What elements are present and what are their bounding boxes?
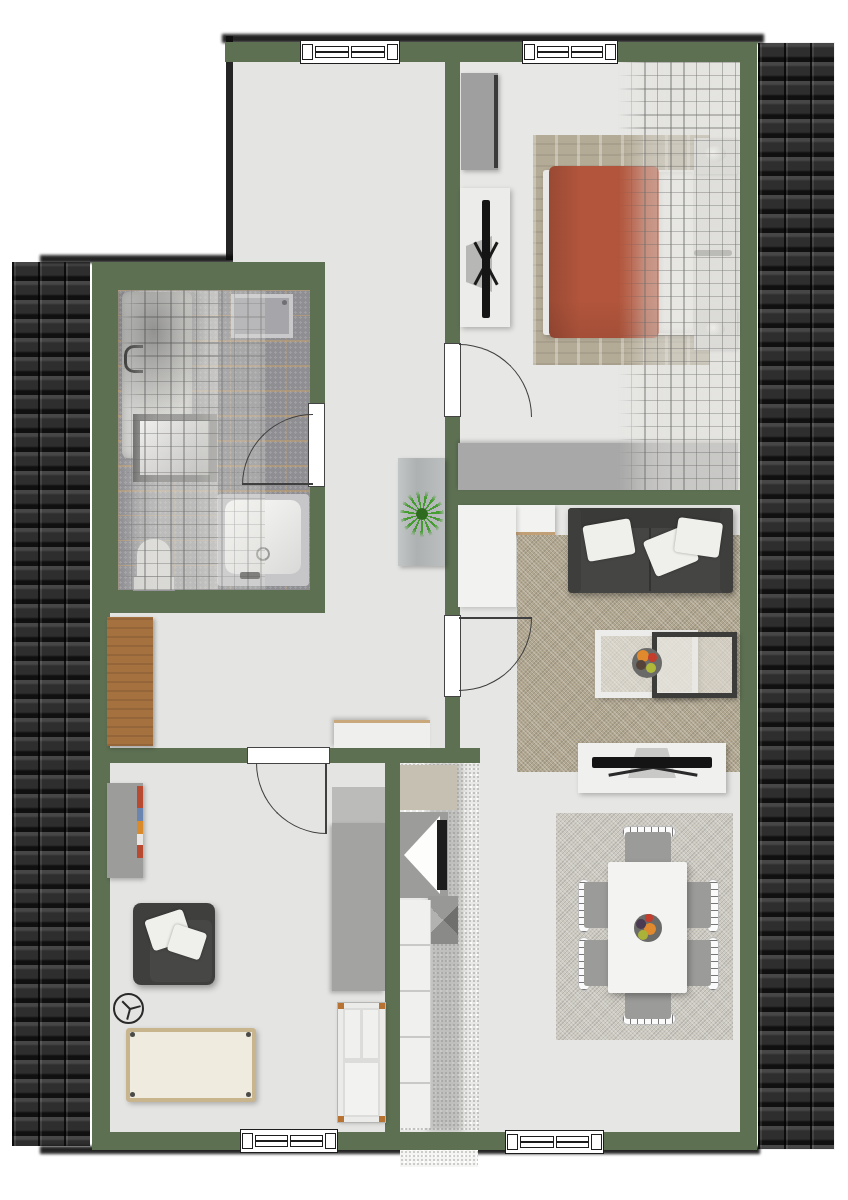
sink-faucet-icon [282,300,287,305]
play-mat [126,1028,256,1102]
crib-cell-a [345,1010,360,1058]
crib-knob-4 [379,1116,385,1122]
hallway-top-window [300,40,400,64]
bedroom-wardrobe-edge [494,75,498,168]
fruit-red-2 [645,914,653,922]
shadow-left-upper [226,36,233,260]
kitchen-counter-run [400,900,431,1128]
wall-bottom [92,1132,757,1150]
entrance-step [400,1150,478,1167]
fruit-green [646,663,656,673]
sofa-pillow-right [674,517,723,558]
mobile-fan-icon [113,993,144,1024]
kids-room-door-frame [247,747,330,764]
mat-corner-4 [246,1092,251,1097]
mat-corner-1 [130,1032,135,1037]
crib-knob-3 [338,1116,344,1122]
crib-knob-2 [379,1003,385,1009]
dining-bottom-window [505,1130,604,1154]
kids-tall-cabinet [332,823,385,991]
kids-room-door-leaf [325,763,327,834]
crib-knob-1 [338,1003,344,1009]
wall-bedroom-bottom [445,490,757,505]
extractor-hood-pyramid [428,896,458,944]
roof-strip-left [12,262,90,1146]
mat-corner-3 [130,1092,135,1097]
mat-corner-2 [246,1032,251,1037]
floor-plan-canvas [0,0,848,1200]
bedroom-top-window [522,40,618,64]
plant-center [416,508,428,520]
bedroom-tv-screen [482,200,490,318]
bedroom-slope-overlay [618,62,740,490]
chair-top [625,832,671,866]
crib-cell-b [363,1010,378,1058]
white-sideboard-hall [334,720,430,748]
kids-tall-cabinet-top [332,787,385,825]
coffee-table-dark [652,632,737,698]
sofa-armrest-right [720,508,733,593]
wall-right [740,42,757,1150]
living-room-door-leaf [459,617,532,619]
roof-strip-right [757,42,835,1150]
bathroom-slope-dark-blob [118,292,208,422]
fruit-grapes [636,660,646,670]
fruit-red [648,653,657,662]
wall-kidsroom-right [385,763,400,1133]
tv-screen-living [592,757,712,768]
wall-divider-upper [445,62,460,343]
crib-cell-c [345,1063,378,1115]
sofa-armrest-left [568,508,581,593]
fruit-grapes-2 [636,919,646,929]
kitchen-appliance-front [437,820,447,890]
kids-shelf-items [137,786,143,858]
kitchen-tall-cabinet [400,765,457,810]
living-sideboard-left [458,505,516,607]
wood-sideboard [107,617,153,746]
bathroom-door-leaf [242,483,313,485]
kids-room-bottom-window [240,1129,338,1153]
fruit-green-2 [638,930,648,940]
bedroom-wardrobe [461,73,498,170]
